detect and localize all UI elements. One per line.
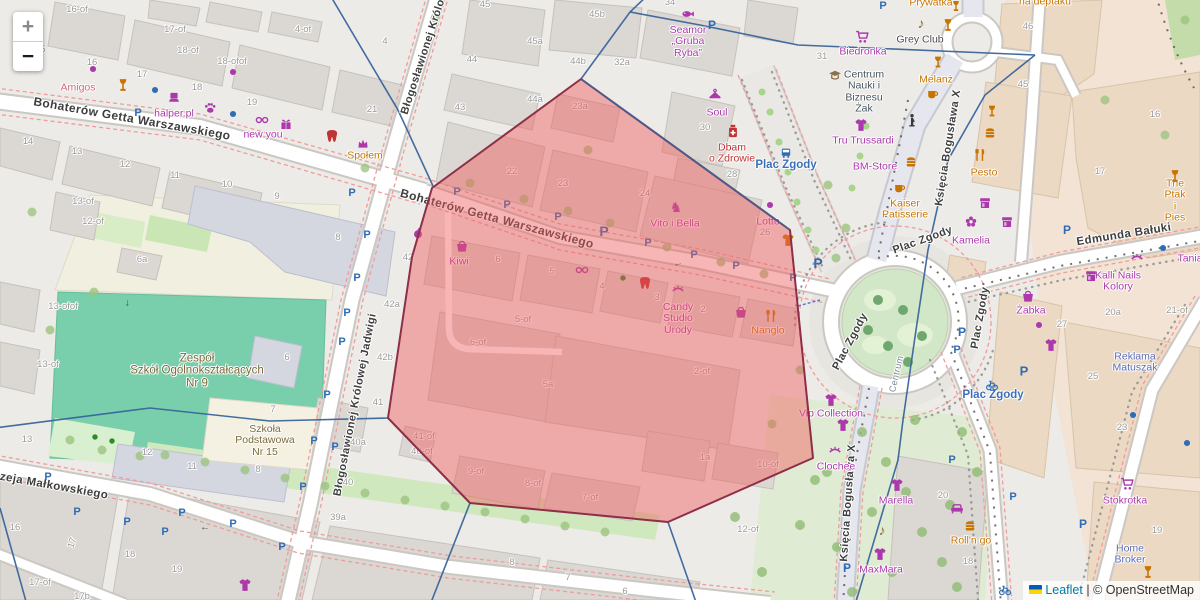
zoom-out-button[interactable]: −: [13, 42, 43, 71]
osm-copyright: © OpenStreetMap: [1093, 583, 1194, 597]
zoom-control: + −: [13, 12, 43, 71]
zoom-in-button[interactable]: +: [13, 12, 43, 42]
attribution-separator: |: [1083, 583, 1093, 597]
ukraine-flag-icon: [1029, 585, 1042, 594]
map-app[interactable]: Bohaterów Getta WarszawskiegoBohaterów G…: [0, 0, 1200, 600]
leaflet-link[interactable]: Leaflet: [1045, 583, 1083, 597]
attribution-bar: Leaflet | © OpenStreetMap: [1023, 581, 1200, 600]
map-canvas[interactable]: [0, 0, 1200, 600]
